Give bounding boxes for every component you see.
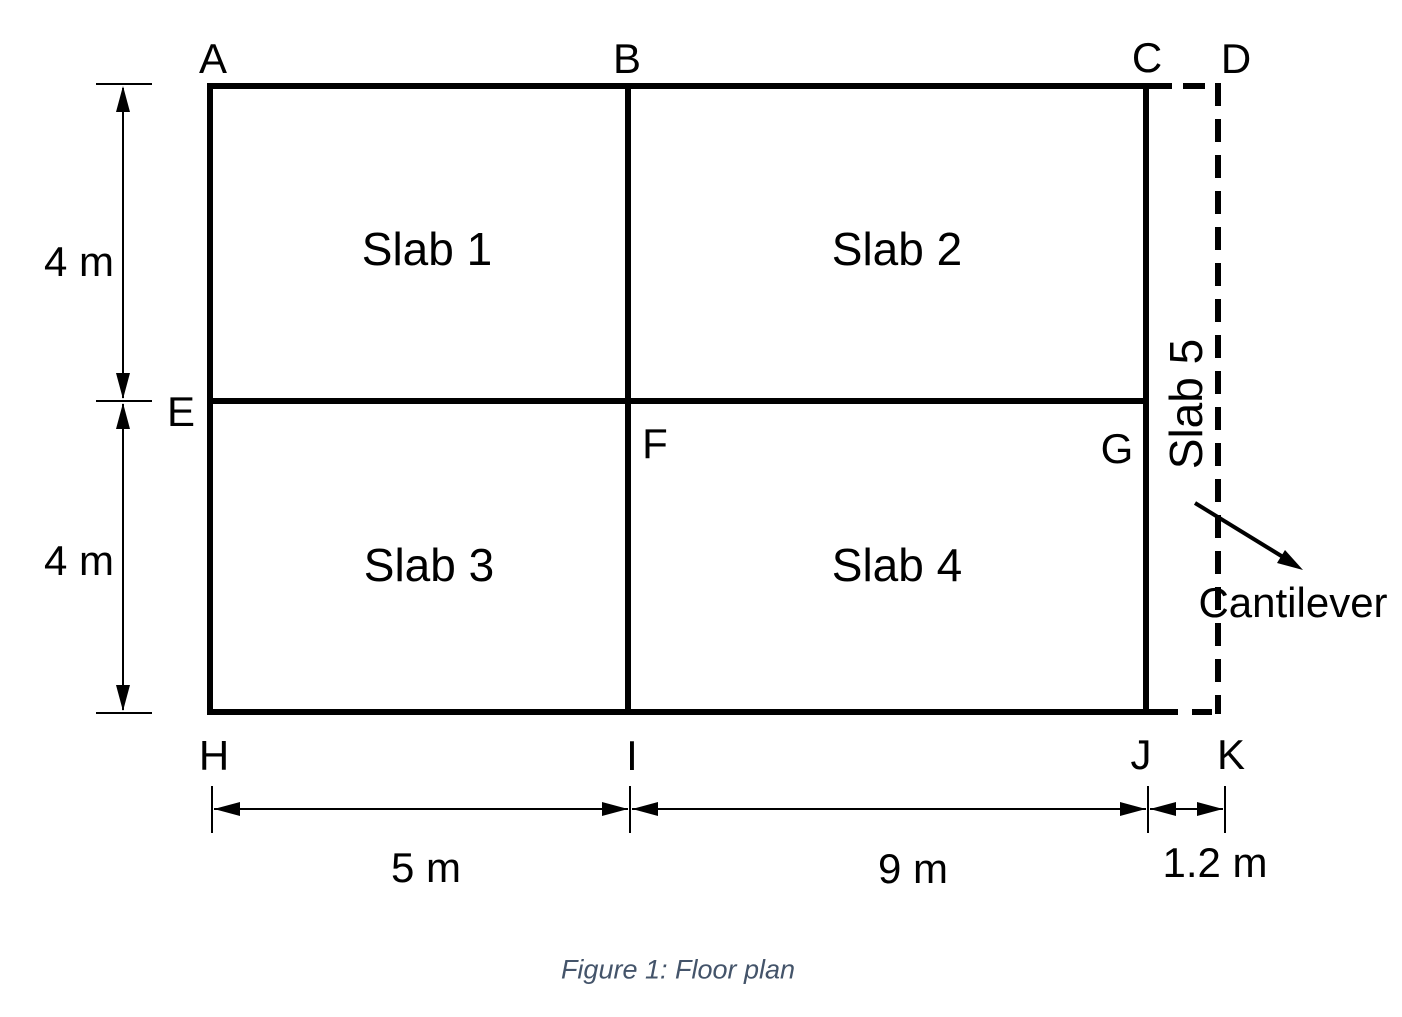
point-label-a: A [199, 38, 227, 80]
arrowhead-right-icon [1120, 802, 1146, 816]
point-label-b: B [613, 38, 641, 80]
dim-label-9m: 9 m [878, 848, 948, 890]
slab-3-label: Slab 3 [364, 542, 494, 588]
cantilever-label: Cantilever [1198, 582, 1387, 624]
arrowhead-right-icon [1197, 802, 1223, 816]
slab-5-label: Slab 5 [1163, 339, 1209, 469]
dim-label-4m-upper: 4 m [44, 241, 114, 283]
point-label-h: H [199, 735, 229, 777]
floor-plan-figure: A B C D E F G H I J K Slab 1 Slab 2 Slab… [0, 0, 1402, 1017]
arrowhead-right-icon [602, 802, 628, 816]
point-label-i: I [626, 735, 638, 777]
arrowhead-left-icon [214, 802, 240, 816]
arrowhead-up-icon [116, 403, 130, 429]
cantilever-arrowhead-icon [1277, 550, 1303, 570]
point-label-e: E [167, 391, 195, 433]
arrowhead-down-icon [116, 685, 130, 711]
point-label-c: C [1132, 37, 1162, 79]
arrowhead-up-icon [116, 86, 130, 112]
slab-4-label: Slab 4 [832, 542, 962, 588]
arrowhead-down-icon [116, 373, 130, 399]
slab-1-label: Slab 1 [362, 226, 492, 272]
point-label-d: D [1221, 38, 1251, 80]
point-label-j: J [1131, 734, 1152, 776]
dim-label-1-2m: 1.2 m [1162, 842, 1267, 884]
slab-2-label: Slab 2 [832, 226, 962, 272]
arrowhead-left-icon [1150, 802, 1176, 816]
point-label-g: G [1101, 428, 1134, 470]
dim-label-5m: 5 m [391, 847, 461, 889]
point-label-f: F [642, 423, 668, 465]
dim-label-4m-lower: 4 m [44, 540, 114, 582]
arrowhead-left-icon [632, 802, 658, 816]
figure-caption: Figure 1: Floor plan [561, 955, 795, 986]
point-label-k: K [1217, 734, 1245, 776]
cantilever-arrow-line [1195, 503, 1283, 557]
